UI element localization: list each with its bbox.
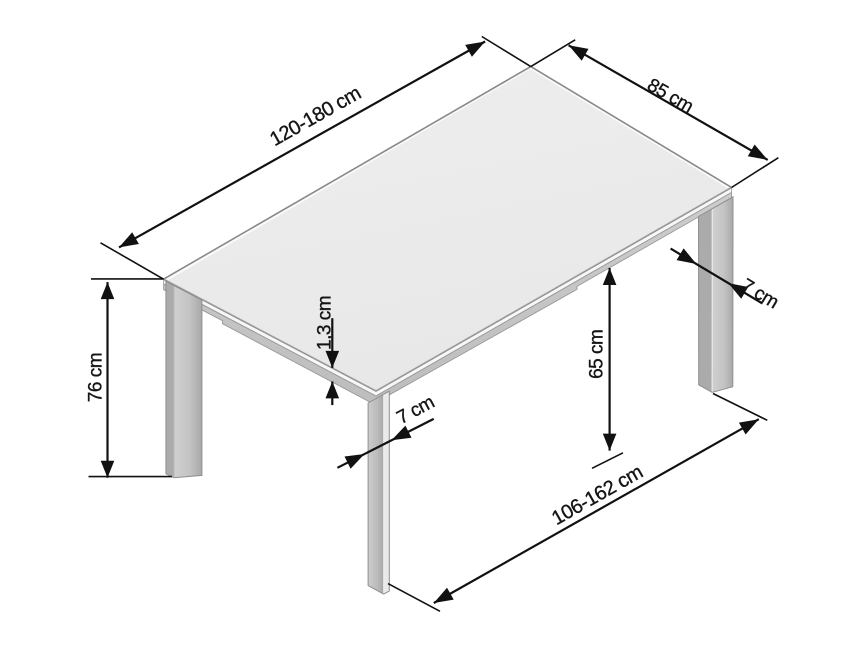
svg-text:85 cm: 85 cm bbox=[643, 75, 696, 118]
svg-text:7 cm: 7 cm bbox=[737, 275, 781, 313]
svg-text:1,3 cm: 1,3 cm bbox=[314, 296, 335, 350]
svg-text:76 cm: 76 cm bbox=[85, 353, 106, 402]
svg-text:7 cm: 7 cm bbox=[393, 392, 437, 429]
svg-text:65 cm: 65 cm bbox=[587, 330, 608, 379]
svg-text:106-162 cm: 106-162 cm bbox=[548, 461, 646, 530]
